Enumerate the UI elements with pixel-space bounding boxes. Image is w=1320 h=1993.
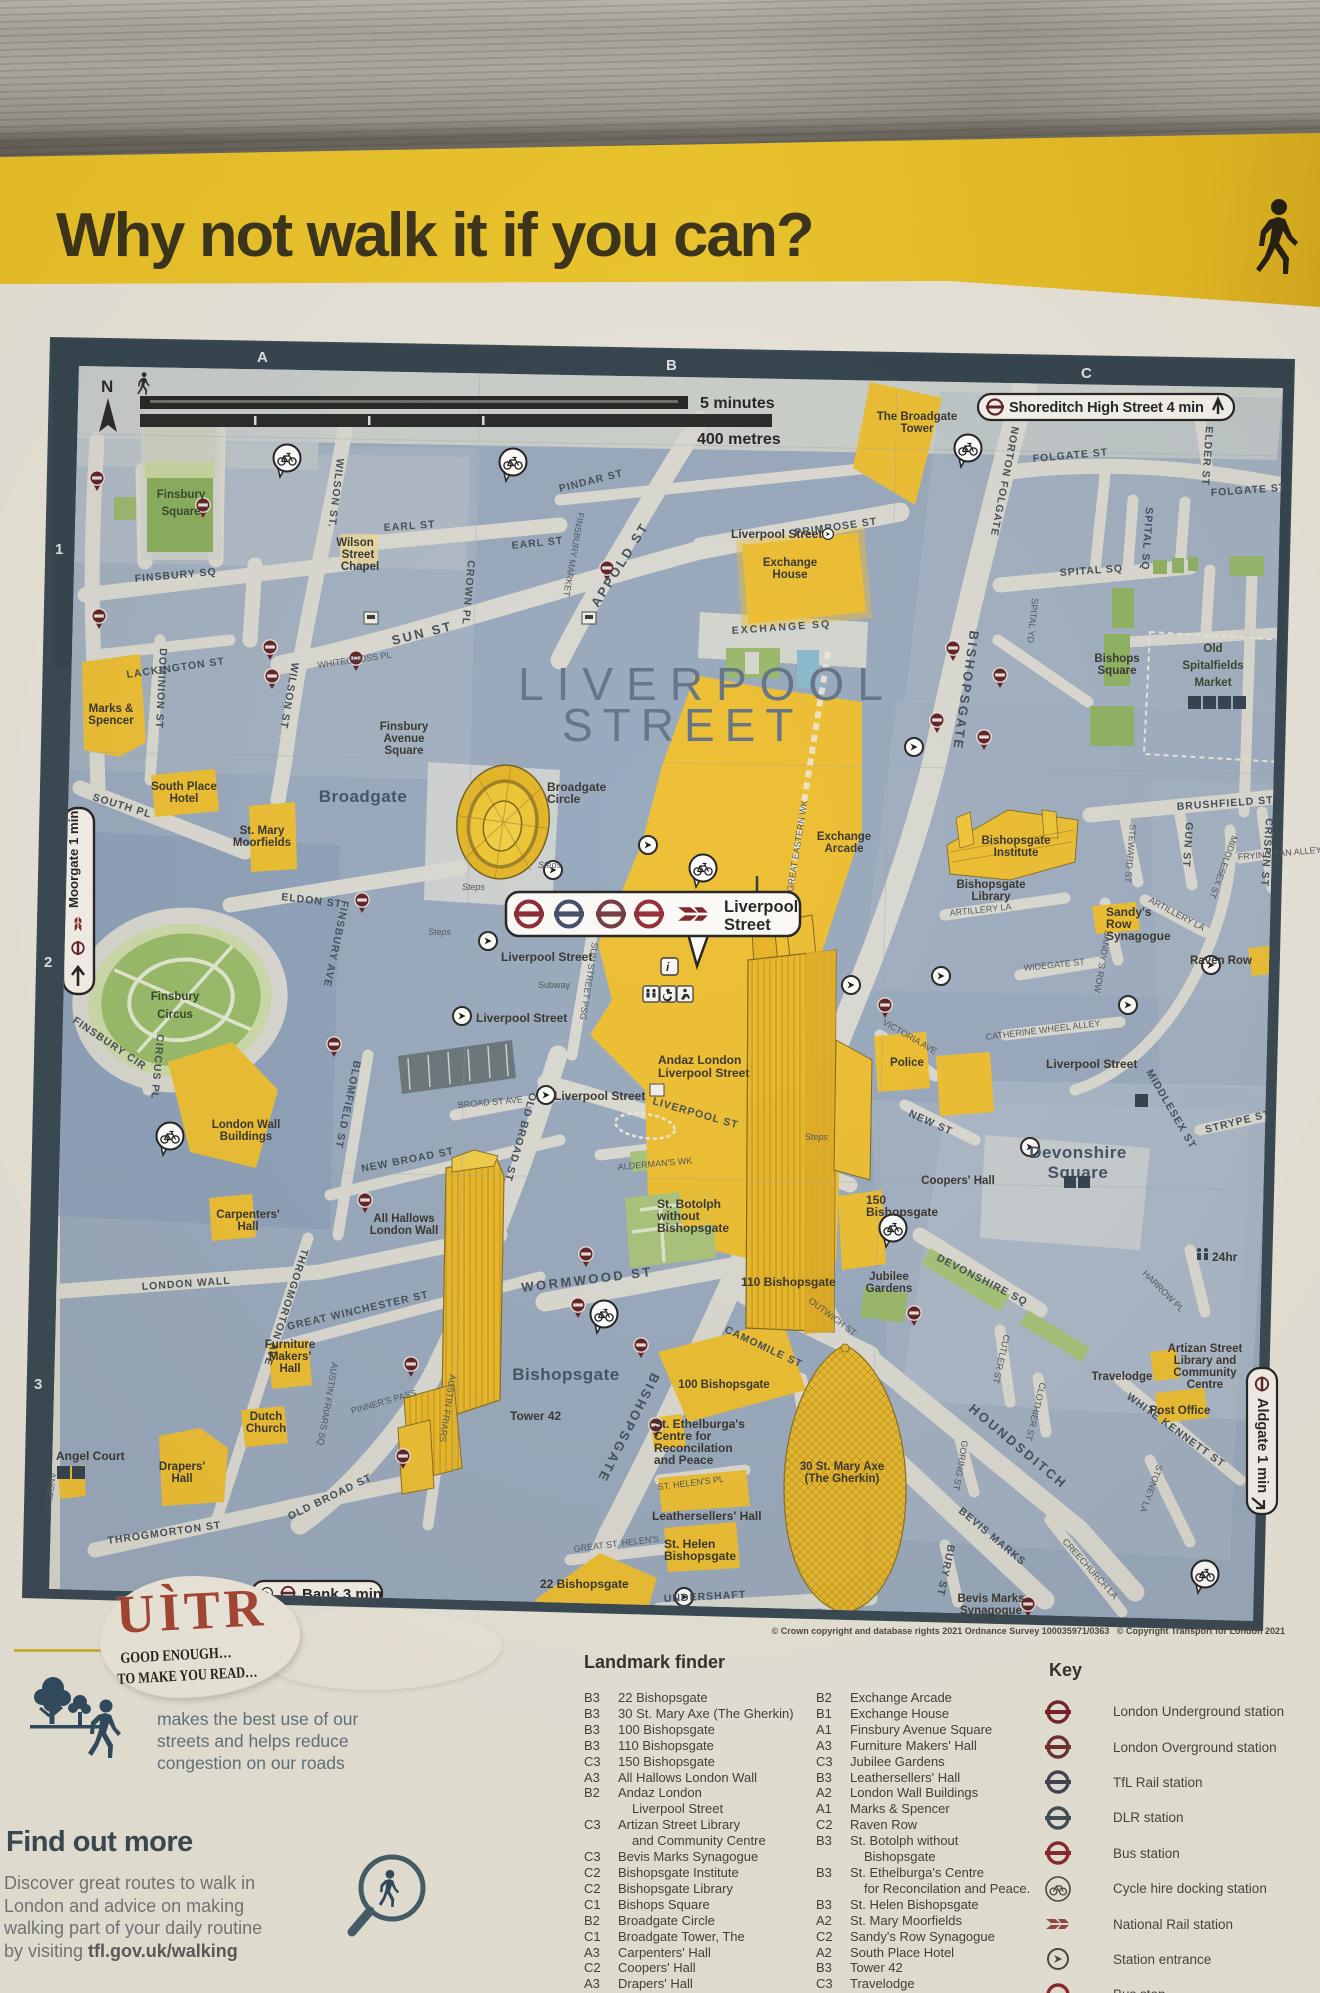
svg-text:100 Bishopsgate: 100 Bishopsgate <box>678 1379 769 1391</box>
svg-text:© Crown copyright and database: © Crown copyright and database rights 20… <box>772 1626 1285 1636</box>
svg-text:Bishopsgate: Bishopsgate <box>866 1205 938 1219</box>
svg-text:Coopers' Hall: Coopers' Hall <box>921 1175 995 1187</box>
svg-text:Centre: Centre <box>1187 1379 1223 1391</box>
svg-text:Dutch: Dutch <box>250 1411 283 1423</box>
svg-text:Wilson: Wilson <box>336 537 374 549</box>
svg-text:Shoreditch High Street 4 min: Shoreditch High Street 4 min <box>1009 400 1204 416</box>
svg-text:Spitalfields: Spitalfields <box>1182 660 1243 672</box>
svg-text:All Hallows: All Hallows <box>373 1213 434 1225</box>
svg-text:and Peace: and Peace <box>654 1453 714 1467</box>
svg-text:C: C <box>1081 365 1092 382</box>
svg-text:Drapers': Drapers' <box>159 1461 205 1473</box>
svg-text:Bishopsgate: Bishopsgate <box>981 835 1050 847</box>
svg-text:South Place: South Place <box>151 781 217 793</box>
svg-text:Avenue: Avenue <box>383 733 424 745</box>
svg-text:22 Bishopsgate: 22 Bishopsgate <box>540 1577 629 1591</box>
svg-text:Market: Market <box>1194 677 1231 689</box>
svg-text:Aldgate 1 min: Aldgate 1 min <box>1254 1398 1270 1493</box>
svg-text:Bishopsgate: Bishopsgate <box>956 879 1025 891</box>
svg-text:Finsbury: Finsbury <box>151 991 200 1003</box>
svg-text:Post Office: Post Office <box>1150 1405 1211 1417</box>
svg-text:30 St. Mary Axe: 30 St. Mary Axe <box>800 1461 885 1473</box>
svg-text:Liverpool Street: Liverpool Street <box>476 1011 567 1025</box>
svg-text:Finsbury: Finsbury <box>157 489 206 501</box>
svg-text:STREET: STREET <box>562 699 803 751</box>
svg-text:Moorfields: Moorfields <box>233 837 291 849</box>
svg-text:Andaz London: Andaz London <box>658 1053 741 1067</box>
svg-text:B: B <box>666 357 677 374</box>
svg-text:Circle: Circle <box>547 792 581 806</box>
svg-text:Synagogue: Synagogue <box>1106 929 1171 943</box>
svg-text:Hall: Hall <box>237 1221 258 1233</box>
svg-text:Square: Square <box>385 745 424 757</box>
svg-text:Marks &: Marks & <box>89 703 134 715</box>
svg-text:Broadgate: Broadgate <box>319 787 408 806</box>
svg-text:Liverpool: Liverpool <box>724 898 798 916</box>
svg-text:Square: Square <box>162 506 201 518</box>
svg-text:Street: Street <box>724 916 771 934</box>
svg-text:House: House <box>772 569 807 581</box>
svg-text:Circus: Circus <box>157 1009 193 1021</box>
svg-text:London Wall: London Wall <box>370 1225 439 1237</box>
svg-text:24hr: 24hr <box>1212 1250 1238 1264</box>
svg-text:Tower: Tower <box>900 423 934 435</box>
svg-text:Bishopsgate: Bishopsgate <box>664 1549 736 1563</box>
svg-text:Carpenters': Carpenters' <box>216 1209 280 1221</box>
svg-text:Bishops: Bishops <box>1094 653 1139 665</box>
svg-text:Church: Church <box>246 1423 286 1435</box>
svg-text:Leathersellers' Hall: Leathersellers' Hall <box>652 1509 762 1523</box>
svg-text:1: 1 <box>55 541 63 558</box>
svg-text:Makers': Makers' <box>269 1351 312 1363</box>
svg-text:Square: Square <box>1098 665 1137 677</box>
svg-text:Steps: Steps <box>538 860 562 870</box>
svg-text:Bevis Marks: Bevis Marks <box>957 1593 1024 1605</box>
svg-text:Angel Court: Angel Court <box>56 1449 125 1463</box>
svg-text:Institute: Institute <box>994 847 1039 859</box>
svg-text:Finsbury: Finsbury <box>380 721 429 733</box>
svg-text:Community: Community <box>1173 1367 1237 1379</box>
svg-text:Chapel: Chapel <box>341 561 379 573</box>
svg-text:Liverpool Street: Liverpool Street <box>501 950 592 964</box>
svg-text:110 Bishopsgate: 110 Bishopsgate <box>741 1275 836 1289</box>
svg-text:Police: Police <box>890 1057 924 1069</box>
svg-text:Synagogue: Synagogue <box>960 1605 1022 1617</box>
svg-text:Spencer: Spencer <box>88 715 134 727</box>
svg-text:Furniture: Furniture <box>265 1339 315 1351</box>
svg-text:Buildings: Buildings <box>220 1131 272 1143</box>
svg-text:2: 2 <box>44 954 52 971</box>
svg-text:Steps: Steps <box>805 1132 829 1142</box>
svg-text:Library and: Library and <box>1174 1355 1237 1367</box>
svg-text:Jubilee: Jubilee <box>869 1271 909 1283</box>
svg-text:3: 3 <box>34 1376 42 1393</box>
svg-text:Arcade: Arcade <box>825 843 864 855</box>
svg-text:Steps: Steps <box>462 882 486 892</box>
svg-text:Subway: Subway <box>538 980 571 990</box>
svg-text:A: A <box>257 349 268 366</box>
svg-text:Old: Old <box>1203 643 1222 655</box>
svg-text:Travelodge: Travelodge <box>1092 1371 1153 1383</box>
svg-text:Tower 42: Tower 42 <box>510 1409 561 1423</box>
svg-text:Liverpool Street: Liverpool Street <box>658 1066 749 1080</box>
svg-text:Bishopsgate: Bishopsgate <box>657 1221 729 1235</box>
svg-text:Exchange: Exchange <box>817 831 871 843</box>
svg-text:Liverpool Street: Liverpool Street <box>554 1089 645 1103</box>
svg-text:Street: Street <box>342 549 375 561</box>
svg-text:London Wall: London Wall <box>212 1119 281 1131</box>
svg-text:Moorgate 1 min: Moorgate 1 min <box>66 811 81 908</box>
svg-text:Devonshire: Devonshire <box>1029 1143 1127 1162</box>
svg-text:St. Mary: St. Mary <box>240 825 285 837</box>
svg-text:Hotel: Hotel <box>170 793 199 805</box>
svg-text:Liverpool Street: Liverpool Street <box>731 527 822 541</box>
svg-text:Bishopsgate: Bishopsgate <box>512 1365 620 1384</box>
svg-text:Library: Library <box>972 891 1012 903</box>
svg-text:5 minutes: 5 minutes <box>700 395 775 412</box>
svg-text:Gardens: Gardens <box>866 1283 913 1295</box>
svg-text:Artizan Street: Artizan Street <box>1168 1343 1243 1355</box>
svg-text:Hall: Hall <box>279 1363 300 1375</box>
svg-text:Steps: Steps <box>428 927 452 937</box>
svg-text:Exchange: Exchange <box>763 557 817 569</box>
svg-text:Raven Row: Raven Row <box>1190 955 1252 967</box>
svg-text:400 metres: 400 metres <box>697 431 781 448</box>
svg-text:Liverpool Street: Liverpool Street <box>1046 1057 1137 1071</box>
svg-text:The Broadgate: The Broadgate <box>877 411 958 423</box>
svg-text:(The Gherkin): (The Gherkin) <box>805 1473 880 1485</box>
svg-text:Hall: Hall <box>171 1473 192 1485</box>
svg-text:N: N <box>101 377 113 396</box>
